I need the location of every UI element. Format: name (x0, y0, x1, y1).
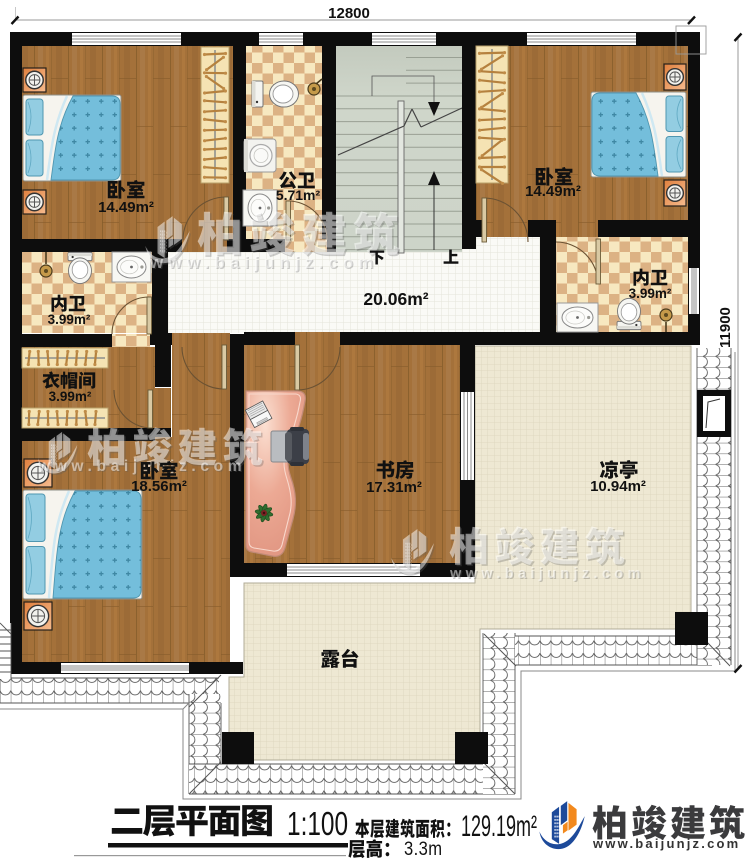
svg-text:www.baijunjz.com: www.baijunjz.com (149, 253, 378, 272)
svg-text:14.49m²: 14.49m² (525, 183, 581, 200)
svg-text:12800: 12800 (328, 5, 370, 22)
svg-text:3.99m²: 3.99m² (629, 286, 672, 301)
svg-text:3.99m²: 3.99m² (49, 389, 92, 404)
svg-text:11900: 11900 (717, 307, 734, 348)
svg-text:3.99m²: 3.99m² (48, 312, 91, 327)
svg-text:3.3m: 3.3m (404, 838, 443, 860)
svg-text:20.06m²: 20.06m² (363, 289, 428, 309)
svg-text:5.71m²: 5.71m² (276, 187, 321, 203)
svg-text:14.49m²: 14.49m² (98, 199, 154, 216)
svg-text:10.94m²: 10.94m² (590, 478, 646, 495)
svg-text:www.baijunjz.com: www.baijunjz.com (449, 566, 645, 582)
svg-text:1:100: 1:100 (287, 807, 348, 843)
svg-text:18.56m²: 18.56m² (131, 478, 187, 495)
svg-text:129.19m²: 129.19m² (461, 811, 537, 844)
svg-text:17.31m²: 17.31m² (366, 479, 422, 496)
svg-text:www.baijunjz.com: www.baijunjz.com (592, 836, 740, 851)
